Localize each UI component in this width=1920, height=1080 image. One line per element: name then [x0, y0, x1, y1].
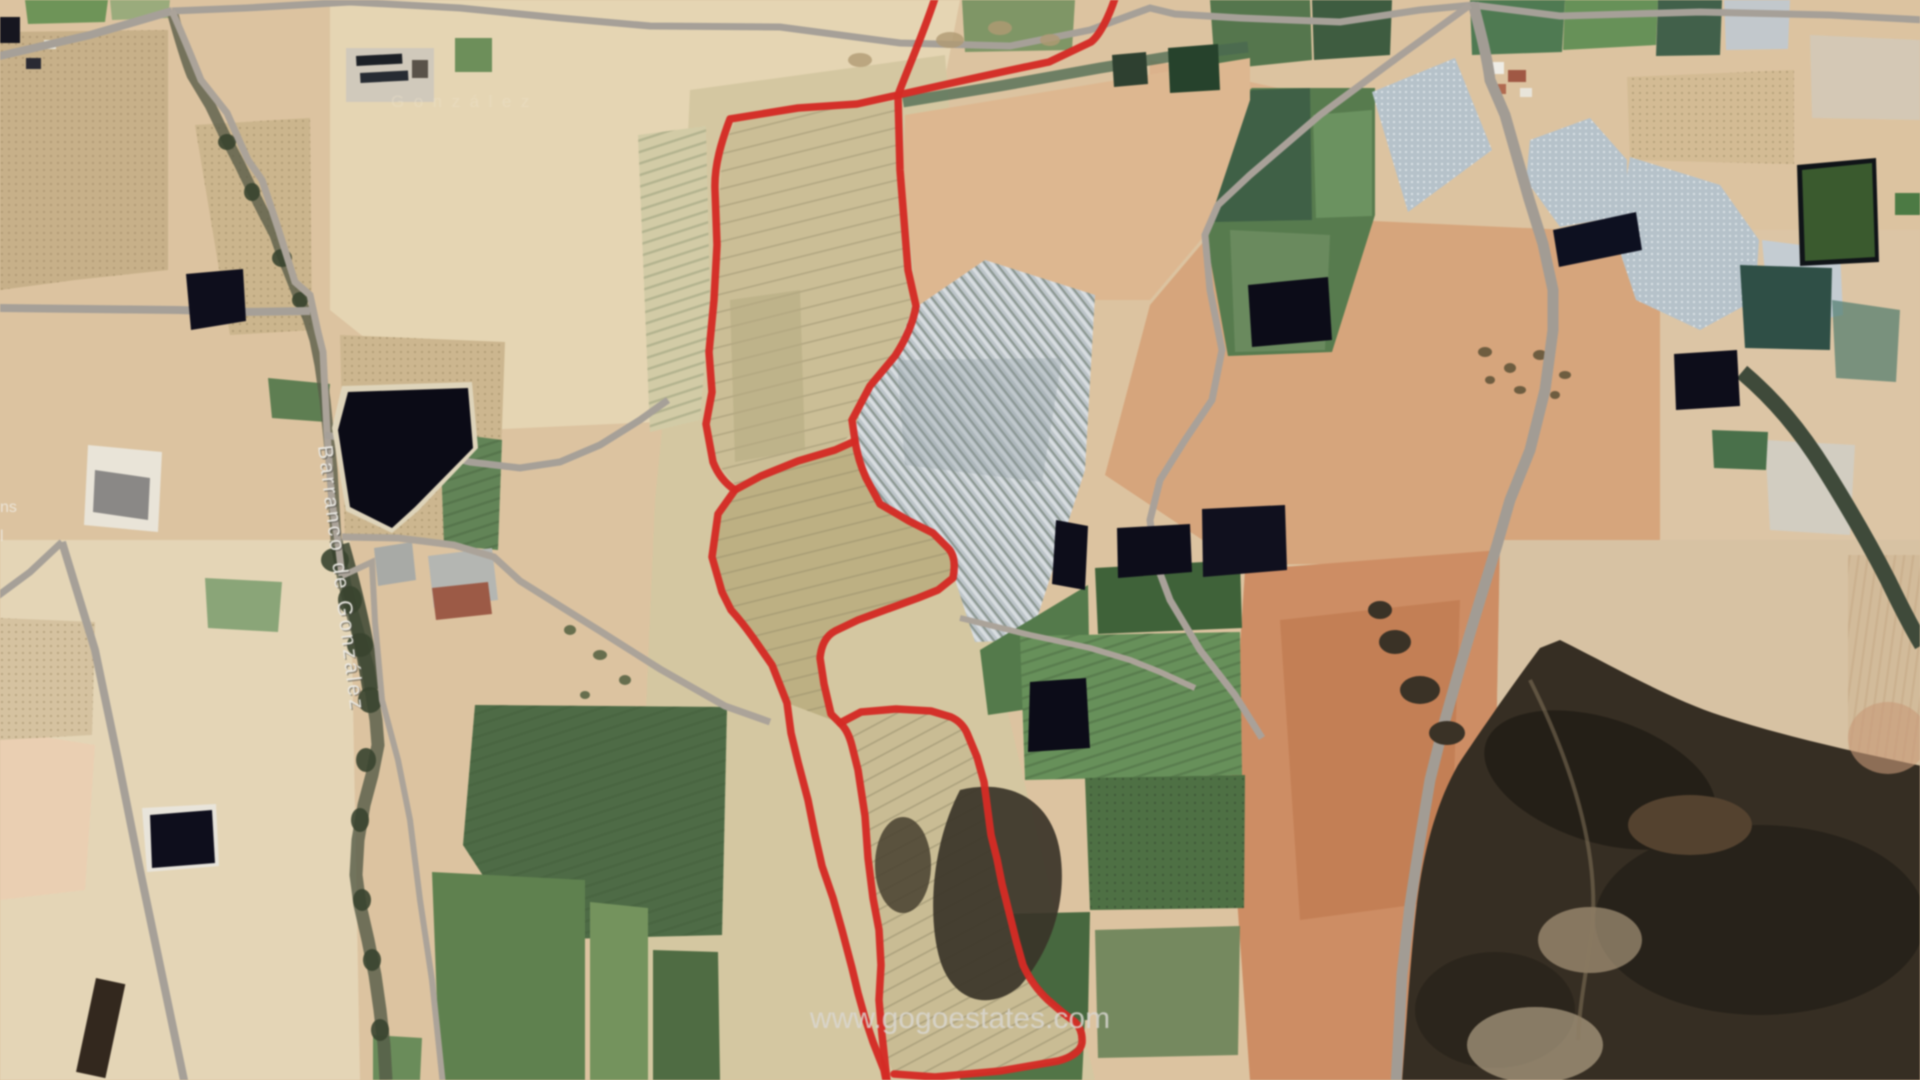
svg-text:www.gogoestates.com: www.gogoestates.com: [809, 1002, 1110, 1035]
svg-text:González: González: [391, 92, 539, 111]
svg-text:l: l: [0, 528, 4, 545]
svg-text:ns: ns: [0, 499, 17, 516]
